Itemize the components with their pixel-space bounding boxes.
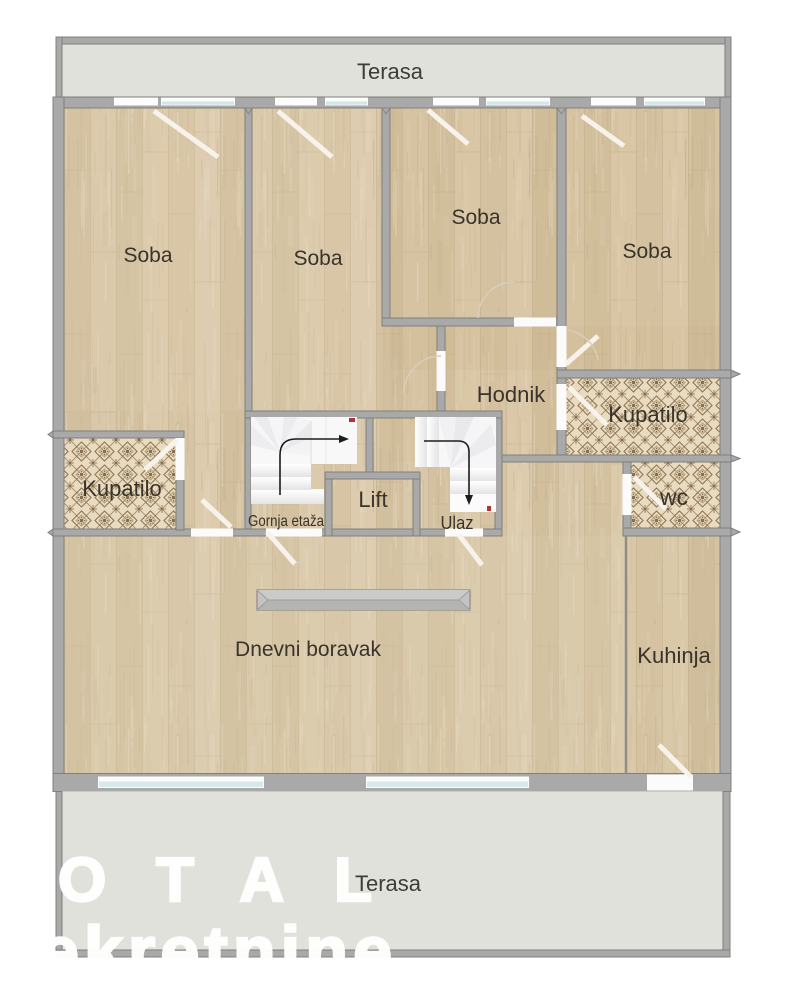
svg-text:Soba: Soba [622, 240, 671, 263]
svg-text:wc: wc [659, 484, 688, 510]
svg-text:Kupatilo: Kupatilo [608, 402, 688, 427]
svg-text:ekretnine: ekretnine [40, 912, 392, 990]
svg-text:Dnevni boravak: Dnevni boravak [235, 638, 381, 661]
svg-text:Hodnik: Hodnik [477, 382, 546, 407]
svg-text:Gornja etaža: Gornja etaža [248, 513, 324, 530]
svg-text:Kupatilo: Kupatilo [82, 476, 162, 501]
svg-text:Soba: Soba [451, 206, 500, 229]
svg-text:Kuhinja: Kuhinja [637, 643, 711, 668]
svg-text:Terasa: Terasa [357, 59, 424, 84]
svg-text:Lift: Lift [358, 487, 387, 512]
svg-text:Soba: Soba [123, 244, 172, 267]
svg-text:Soba: Soba [293, 247, 342, 270]
svg-text:Ulaz: Ulaz [441, 513, 474, 533]
